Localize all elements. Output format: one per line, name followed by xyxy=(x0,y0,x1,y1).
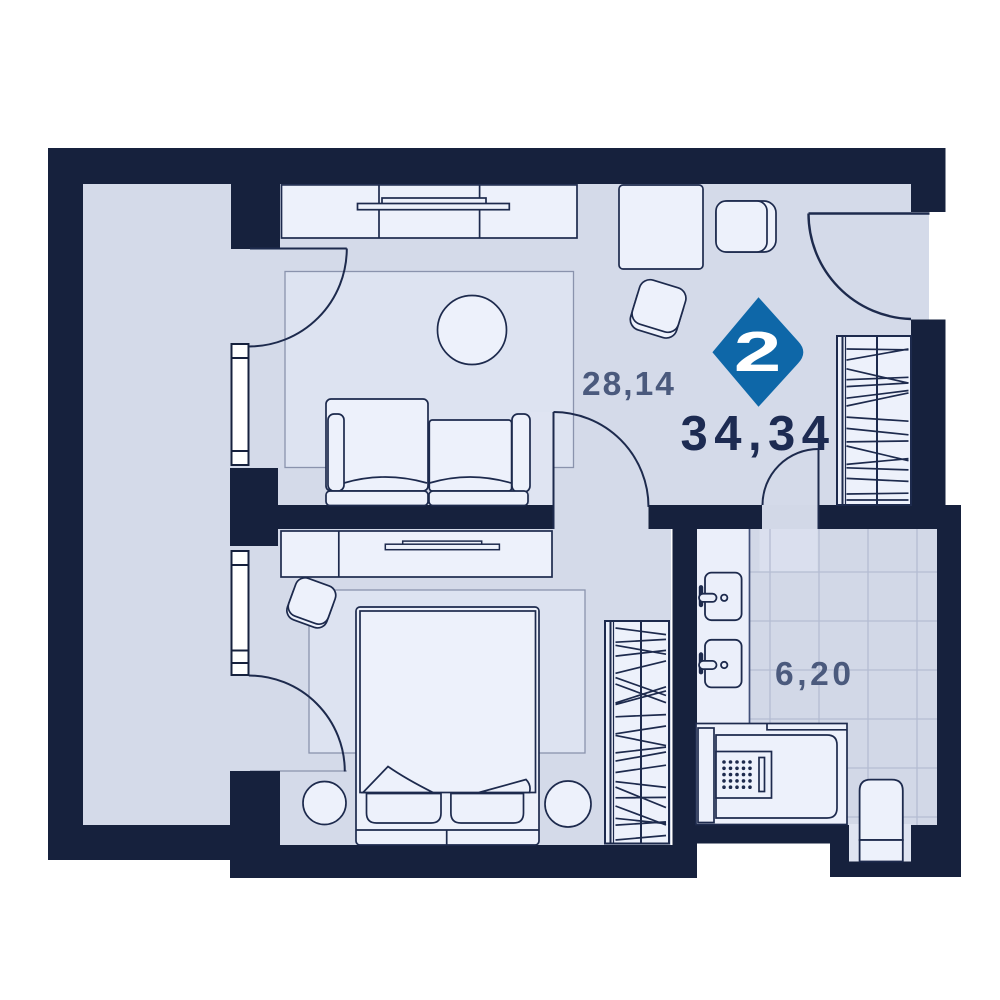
svg-text:34,34: 34,34 xyxy=(680,407,835,461)
svg-text:2: 2 xyxy=(734,320,782,384)
svg-text:28,14: 28,14 xyxy=(582,366,676,403)
svg-text:6,20: 6,20 xyxy=(775,656,855,693)
